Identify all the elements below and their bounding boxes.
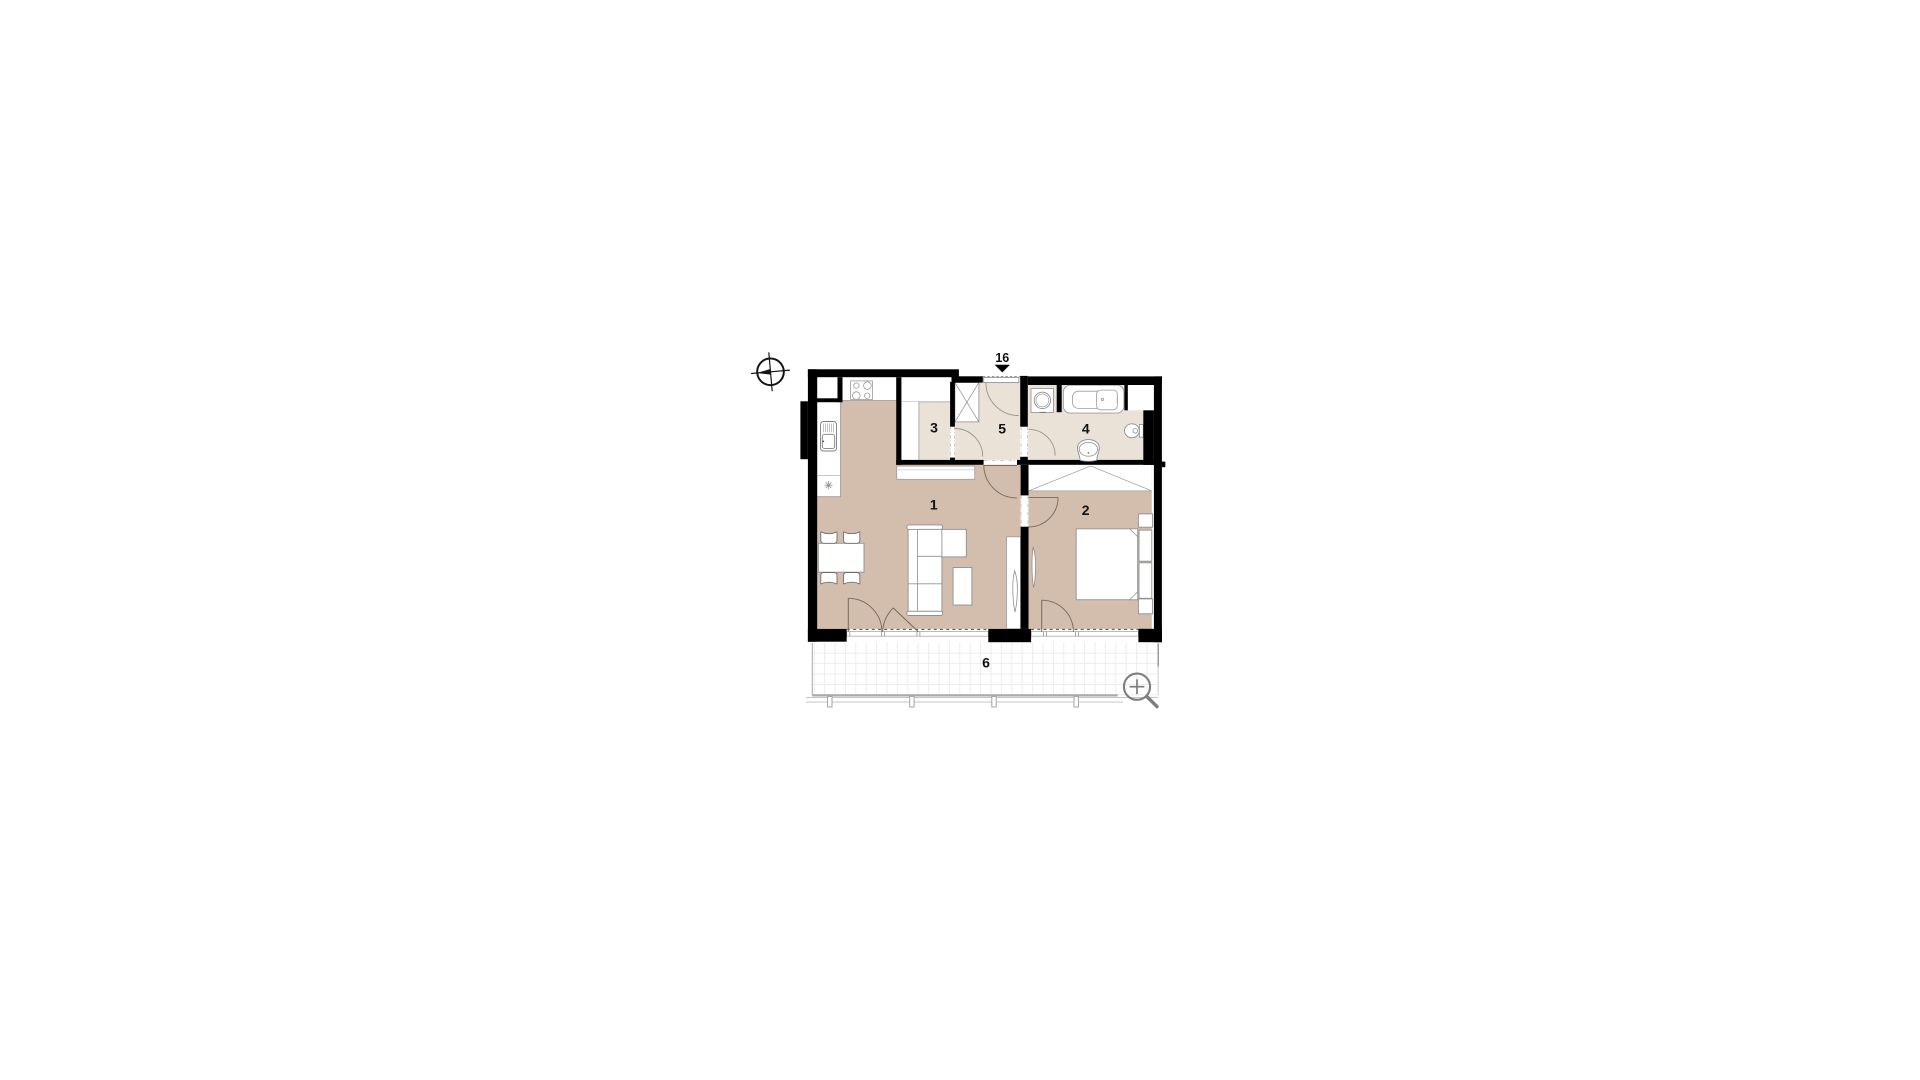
svg-text:1: 1 [930, 497, 938, 513]
svg-text:4: 4 [1082, 421, 1090, 437]
svg-text:5: 5 [998, 420, 1006, 436]
svg-text:3: 3 [930, 419, 938, 435]
svg-text:16: 16 [995, 351, 1009, 365]
svg-text:6: 6 [982, 655, 990, 671]
svg-text:2: 2 [1082, 502, 1090, 518]
